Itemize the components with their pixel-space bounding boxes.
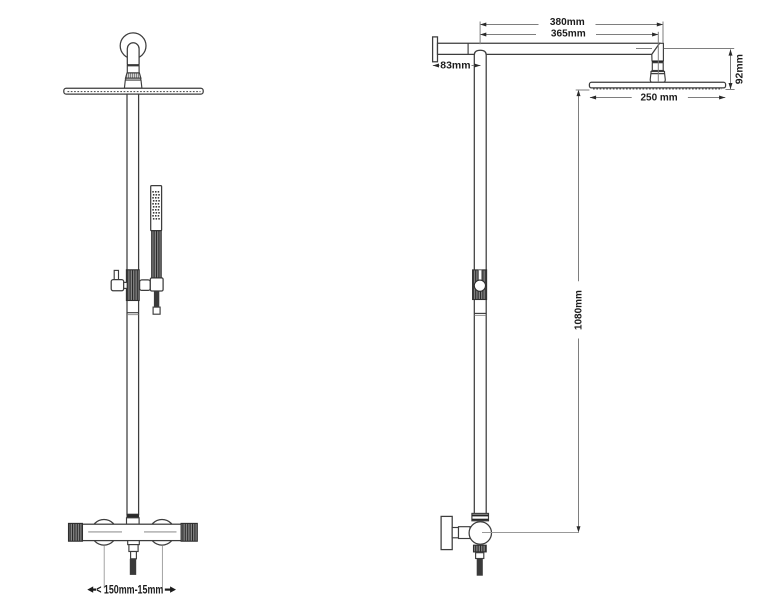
svg-text:380mm: 380mm [550, 16, 585, 28]
svg-text:365mm: 365mm [551, 27, 586, 39]
svg-text:< 150mm-15mm: < 150mm-15mm [96, 582, 163, 596]
svg-text:83mm: 83mm [440, 59, 470, 71]
svg-text:250 mm: 250 mm [641, 91, 678, 103]
svg-text:1080mm: 1080mm [572, 290, 584, 330]
svg-text:92mm: 92mm [734, 54, 746, 84]
